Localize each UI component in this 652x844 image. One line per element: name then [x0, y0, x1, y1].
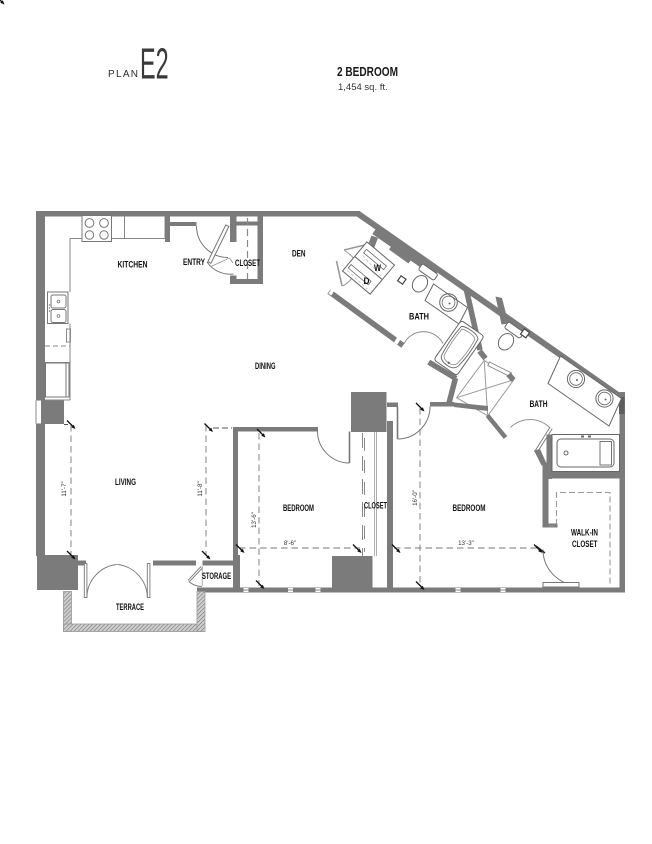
svg-text:KITCHEN: KITCHEN: [118, 259, 148, 270]
svg-text:CLOSET: CLOSET: [572, 538, 598, 549]
svg-text:WALK-IN: WALK-IN: [571, 527, 598, 538]
svg-text:D: D: [364, 275, 370, 286]
svg-text:ENTRY: ENTRY: [183, 256, 206, 267]
svg-text:2 BEDROOM: 2 BEDROOM: [337, 65, 398, 79]
svg-text:E2: E2: [140, 40, 169, 89]
svg-text:BATH: BATH: [409, 311, 429, 322]
svg-text:DINING: DINING: [255, 360, 276, 371]
svg-text:BEDROOM: BEDROOM: [283, 502, 314, 513]
svg-text:STORAGE: STORAGE: [202, 570, 231, 581]
svg-text:13'-3": 13'-3": [458, 540, 474, 547]
svg-text:BEDROOM: BEDROOM: [453, 502, 486, 513]
svg-text:CLOSET: CLOSET: [235, 257, 260, 268]
svg-text:LIVING: LIVING: [115, 476, 136, 487]
svg-text:DEN: DEN: [292, 248, 306, 259]
svg-text:1,454 sq. ft.: 1,454 sq. ft.: [338, 82, 388, 93]
svg-text:11'-7": 11'-7": [61, 481, 68, 496]
svg-text:16'-0": 16'-0": [412, 490, 419, 506]
svg-text:PLAN: PLAN: [108, 69, 139, 80]
svg-text:CLOSET: CLOSET: [364, 500, 387, 511]
svg-text:TERRACE: TERRACE: [116, 601, 144, 612]
svg-text:8'-6": 8'-6": [284, 540, 296, 547]
svg-text:13'-6": 13'-6": [251, 512, 258, 528]
svg-text:W: W: [374, 262, 381, 273]
svg-text:BATH: BATH: [530, 398, 548, 409]
svg-text:11'-8": 11'-8": [197, 481, 204, 496]
